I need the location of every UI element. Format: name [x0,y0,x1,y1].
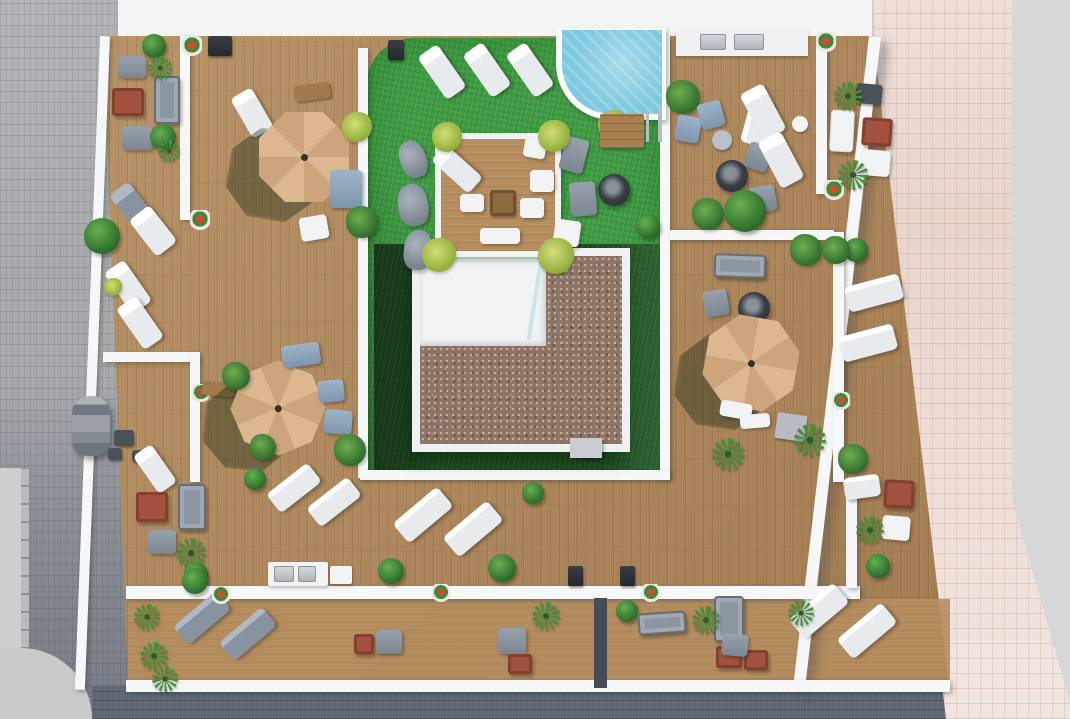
beanbag-grey [395,182,431,228]
plant-yellow [342,112,372,142]
plant-green [250,434,276,460]
pot [212,586,230,604]
chair-grey [376,630,402,654]
plant-yellow [538,238,574,274]
pot [190,210,210,230]
table-dark [114,430,134,446]
bush [244,468,266,490]
chair-grey [148,530,176,554]
table-red [883,479,914,509]
pot [816,32,836,52]
lounger-white [133,444,177,494]
pot [182,36,202,56]
chair-blue [674,114,702,144]
bush [866,554,890,578]
bush-large [378,558,404,584]
table-red [112,88,144,116]
chair-white [881,515,911,541]
appliance [734,34,764,50]
palm [794,424,826,456]
table-round-white [792,116,808,132]
chair-white [298,214,330,242]
sofa-grey [178,484,206,530]
table-red [744,650,768,670]
chair-grey [498,628,526,654]
ladder [646,110,662,142]
plant-green [692,198,724,230]
sofa-grey [154,76,180,124]
firepit [598,174,630,206]
sofa-grey [714,253,767,279]
bench-wood [293,82,331,103]
lounger-white [505,42,554,98]
lounger-grey [219,607,277,661]
palm [158,140,180,162]
chair-grey [118,56,146,78]
palm [532,602,560,630]
palm [712,438,744,470]
lounger-white [844,273,905,313]
chair-blue [317,379,345,403]
pouf-white [530,170,554,192]
bush-large [724,190,766,232]
table-red [354,634,374,654]
plant-green [666,80,700,114]
table-red [861,117,893,147]
pot [642,584,660,602]
palm [148,56,172,80]
bush-large [182,568,208,594]
plant-yellow [422,238,456,272]
bush [142,34,166,58]
bench-white [480,228,520,244]
palm [788,600,814,626]
appliance [274,566,294,582]
lounger-white [417,44,466,100]
plant-green [838,444,868,474]
speaker-dark [568,566,583,586]
chair-blue [696,99,726,130]
chair-grey [702,288,730,318]
bush [522,482,544,504]
pouf-white [520,198,544,218]
table-red [508,654,532,674]
beanbag-grey [394,137,431,182]
lounger-white [843,474,882,501]
plant-yellow [432,122,462,152]
sofa-white [829,109,855,152]
plant-green [790,234,822,266]
lounger-white [442,500,503,557]
table-round-grey [712,130,732,150]
plant-green [346,206,378,238]
bush-large [84,218,120,254]
sofa-grey [637,610,686,635]
palm [838,160,868,190]
sofa-blue [330,170,362,208]
chair-blue [323,409,353,435]
furniture-layer [0,0,1070,719]
pot [832,392,850,410]
bench-white [739,413,770,430]
lounger-white [836,602,897,659]
lounger-white [838,323,899,363]
appliance [700,34,726,50]
grill-dark [208,36,232,56]
plant-green [822,236,850,264]
palm [834,82,862,110]
palm [692,606,720,634]
palm [856,516,884,544]
bush [616,600,638,622]
chair-grey [569,181,598,217]
lounger-white [462,42,511,98]
pot [432,584,450,602]
lounger-white [116,296,164,351]
table-red [136,492,168,522]
palm [152,666,178,692]
bush [636,214,660,238]
pouf-white [460,194,484,212]
palm [134,604,160,630]
box-white [330,566,352,584]
chair-dark [108,448,122,460]
plant-green [334,434,366,466]
table-tray [490,190,516,216]
car [72,396,110,456]
appliance [298,566,316,582]
sofa-blue [281,341,322,368]
chair-grey [721,633,749,657]
rooftop-terrace-aerial-render [0,0,1070,719]
chair-grey [122,126,152,150]
plant-green [222,362,250,390]
bush-large [488,554,516,582]
speaker-dark [620,566,635,586]
steps-wood [600,114,644,148]
lounger-white [431,144,483,194]
grill-dark [388,40,404,60]
